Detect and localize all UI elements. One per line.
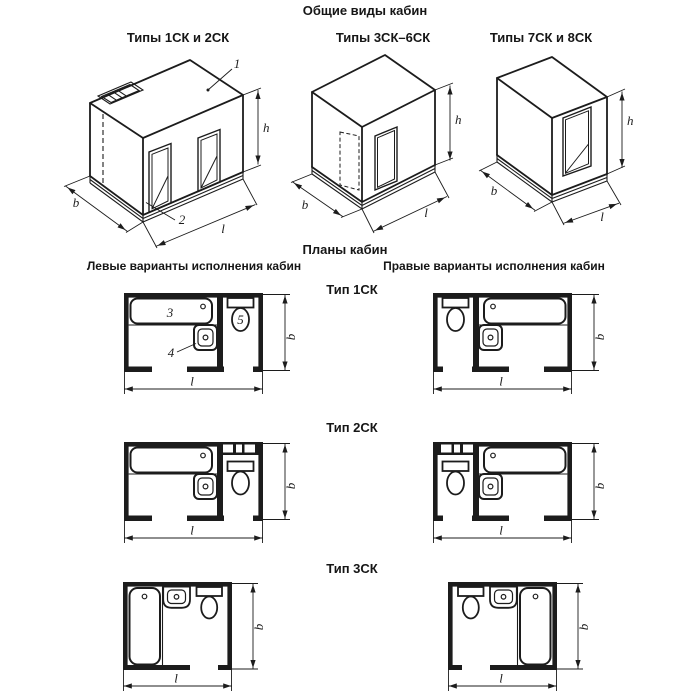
base-plinth bbox=[312, 165, 435, 209]
dim-l-label: l bbox=[499, 523, 503, 538]
plan-2sk-right: b l bbox=[433, 442, 611, 546]
dim-l-label: l bbox=[174, 671, 178, 686]
room bbox=[124, 442, 263, 521]
bathtub-drain bbox=[491, 453, 496, 458]
arrow bbox=[374, 225, 383, 233]
left-variants-heading: Левые варианты исполнения кабин bbox=[87, 260, 301, 272]
right-variants-heading: Правые варианты исполнения кабин bbox=[383, 260, 605, 272]
toilet-bowl bbox=[201, 597, 217, 619]
arrow bbox=[66, 185, 76, 194]
door-inner bbox=[566, 111, 589, 174]
room bbox=[433, 442, 572, 521]
arrow bbox=[156, 240, 165, 248]
dim-l-label: l bbox=[600, 209, 604, 224]
door-inner bbox=[378, 131, 395, 188]
bathtub-drain bbox=[201, 453, 206, 458]
dim-b-label: b bbox=[302, 197, 309, 212]
ventilation-cells bbox=[441, 445, 473, 453]
arrow bbox=[255, 156, 260, 164]
arrow bbox=[117, 223, 127, 232]
bathtub-drain bbox=[201, 304, 206, 309]
washbasin-drain bbox=[174, 595, 179, 600]
type-label-2sk: Тип 2СК bbox=[326, 421, 377, 434]
room bbox=[433, 293, 572, 372]
dim-l-lines bbox=[143, 179, 257, 248]
bathtub bbox=[484, 448, 566, 473]
toilet-bowl bbox=[447, 308, 464, 331]
dim-h-label: h bbox=[455, 112, 462, 127]
dim-l-label: l bbox=[190, 523, 194, 538]
plan-3sk-left: b l bbox=[123, 582, 271, 696]
plan-2sk-left: b l bbox=[124, 442, 302, 546]
toilet-tank bbox=[443, 462, 469, 472]
vent-outline bbox=[98, 82, 143, 104]
toilet-tank bbox=[228, 298, 254, 308]
arrow bbox=[245, 203, 254, 211]
washbasin-drain bbox=[488, 335, 493, 340]
callout-2-label: 2 bbox=[179, 212, 186, 227]
toilet-tank bbox=[458, 587, 484, 596]
dim-b-label: b bbox=[592, 482, 607, 489]
dim-l-lines bbox=[552, 181, 621, 225]
arrow bbox=[293, 181, 303, 190]
callout-1-label: 1 bbox=[234, 56, 241, 71]
toilet-bowl bbox=[447, 472, 464, 495]
dimension-b: b bbox=[64, 176, 143, 233]
iso-view-3sk-6sk: h b l bbox=[285, 52, 467, 238]
washbasin-drain bbox=[203, 335, 208, 340]
roof-ventilation-unit bbox=[98, 82, 143, 104]
arrow bbox=[480, 169, 490, 178]
dim-l-label: l bbox=[499, 671, 503, 686]
dim-l-label: l bbox=[221, 221, 225, 236]
dim-l-label: l bbox=[499, 374, 503, 389]
vertical-edges bbox=[312, 90, 435, 202]
dim-b-label: b bbox=[592, 333, 607, 340]
arrow bbox=[333, 209, 343, 218]
caption-types-7sk-8sk: Типы 7СК и 8СК bbox=[490, 31, 592, 44]
caption-types-1sk-2sk: Типы 1СК и 2СК bbox=[127, 31, 229, 44]
dimension-h: h bbox=[435, 83, 462, 165]
door-outer bbox=[563, 107, 591, 176]
callout-washbasin: 4 bbox=[168, 345, 175, 360]
toilet-tank bbox=[197, 587, 223, 596]
iso-view-1sk-2sk: 1 2 h b l bbox=[62, 50, 274, 250]
roof-face bbox=[90, 60, 243, 138]
dim-h-label: h bbox=[263, 120, 270, 135]
toilet-tank bbox=[228, 462, 254, 472]
plans-title: Планы кабин bbox=[302, 243, 387, 256]
dim-b-label: b bbox=[576, 623, 591, 630]
arrow bbox=[447, 87, 452, 95]
bathtub-drain bbox=[142, 594, 147, 599]
callout-toilet: 5 bbox=[237, 312, 244, 327]
plan-1sk-left: 3 4 5 b l bbox=[124, 293, 302, 397]
bathtub bbox=[520, 588, 551, 665]
door-2-inner bbox=[201, 134, 217, 188]
callout-1-leader bbox=[208, 69, 232, 90]
arrow bbox=[619, 159, 624, 167]
caption-types-3sk-6sk: Типы 3СК–6СК bbox=[336, 31, 430, 44]
dim-b-label: b bbox=[73, 195, 80, 210]
dim-b-label: b bbox=[251, 623, 266, 630]
door-1-inner bbox=[152, 148, 168, 209]
toilet-bowl bbox=[463, 597, 479, 619]
arrow bbox=[525, 202, 535, 211]
dim-l-label: l bbox=[424, 205, 428, 220]
dim-b-label: b bbox=[283, 333, 298, 340]
bathtub-drain bbox=[533, 594, 538, 599]
hidden-door-dashed bbox=[340, 132, 359, 190]
door-outer bbox=[375, 127, 397, 190]
dimension-h: h bbox=[243, 88, 270, 172]
room bbox=[123, 582, 232, 670]
plan-3sk-right: b l bbox=[448, 582, 596, 696]
bathtub bbox=[131, 448, 213, 473]
toilet-bowl bbox=[232, 472, 249, 495]
arrow bbox=[619, 93, 624, 101]
dim-b-label: b bbox=[283, 482, 298, 489]
dim-l-label: l bbox=[190, 374, 194, 389]
callout-1-dot bbox=[207, 89, 210, 92]
arrow bbox=[564, 218, 573, 226]
type-label-1sk: Тип 1СК bbox=[326, 283, 377, 296]
dimension-l: l bbox=[552, 181, 621, 225]
type-label-3sk: Тип 3СК bbox=[326, 562, 377, 575]
arrow bbox=[437, 195, 446, 203]
plan-1sk-right: b l bbox=[433, 293, 611, 397]
dimension-h: h bbox=[607, 89, 634, 174]
arrow bbox=[255, 91, 260, 99]
bathtub bbox=[484, 299, 566, 324]
room bbox=[448, 582, 557, 670]
door-openings bbox=[149, 130, 220, 213]
toilet-tank bbox=[443, 298, 469, 308]
iso-view-7sk-8sk: h b l bbox=[478, 55, 638, 231]
roof-face bbox=[312, 55, 435, 127]
dim-b-label: b bbox=[491, 183, 498, 198]
washbasin-drain bbox=[203, 484, 208, 489]
arrow bbox=[609, 201, 618, 209]
callout-washbasin-leader bbox=[177, 344, 196, 353]
washbasin-drain bbox=[501, 595, 506, 600]
cabin-box bbox=[312, 55, 435, 209]
room bbox=[124, 293, 263, 372]
bathtub-drain bbox=[491, 304, 496, 309]
ventilation-cells bbox=[223, 445, 255, 453]
dimension-l: l bbox=[143, 179, 257, 248]
washbasin-drain bbox=[488, 484, 493, 489]
drawing-sheet: Общие виды кабин Типы 1СК и 2СК Типы 3СК… bbox=[0, 0, 700, 700]
dim-h-label: h bbox=[627, 113, 634, 128]
bathtub bbox=[130, 588, 161, 665]
general-views-title: Общие виды кабин bbox=[303, 4, 428, 17]
callout-bathtub: 3 bbox=[166, 305, 174, 320]
